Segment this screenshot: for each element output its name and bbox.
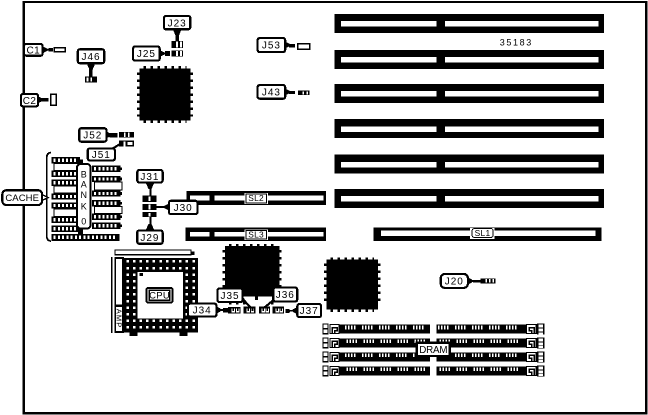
svg-text:DRAM: DRAM — [419, 345, 447, 356]
svg-text:J43: J43 — [262, 88, 281, 99]
svg-text:0: 0 — [81, 217, 86, 227]
svg-text:J51: J51 — [92, 150, 111, 161]
svg-text:J31: J31 — [140, 172, 159, 183]
svg-text:J23: J23 — [168, 18, 187, 29]
svg-text:J34: J34 — [193, 306, 212, 317]
svg-text:CPU: CPU — [149, 291, 170, 302]
svg-text:C2: C2 — [23, 96, 37, 107]
svg-text:J46: J46 — [81, 52, 100, 63]
svg-text:CACHE: CACHE — [5, 193, 39, 204]
svg-text:J29: J29 — [140, 233, 159, 244]
svg-text:C1: C1 — [27, 45, 41, 56]
svg-text:J53: J53 — [262, 41, 281, 52]
svg-text:J52: J52 — [83, 131, 102, 142]
svg-text:SL3: SL3 — [248, 230, 264, 240]
svg-text:J20: J20 — [445, 277, 464, 288]
svg-text:J25: J25 — [137, 49, 156, 60]
svg-text:J36: J36 — [276, 290, 295, 301]
svg-text:J37: J37 — [300, 306, 319, 317]
svg-text:35183: 35183 — [500, 37, 533, 47]
svg-text:SL1: SL1 — [475, 228, 491, 238]
svg-text:SL2: SL2 — [248, 193, 264, 203]
svg-text:N: N — [81, 190, 88, 200]
svg-text:J30: J30 — [174, 203, 193, 214]
svg-text:AMP: AMP — [114, 309, 123, 329]
svg-text:J35: J35 — [220, 291, 239, 302]
svg-text:A: A — [81, 180, 87, 190]
svg-text:B: B — [81, 170, 87, 180]
svg-text:K: K — [81, 201, 87, 211]
